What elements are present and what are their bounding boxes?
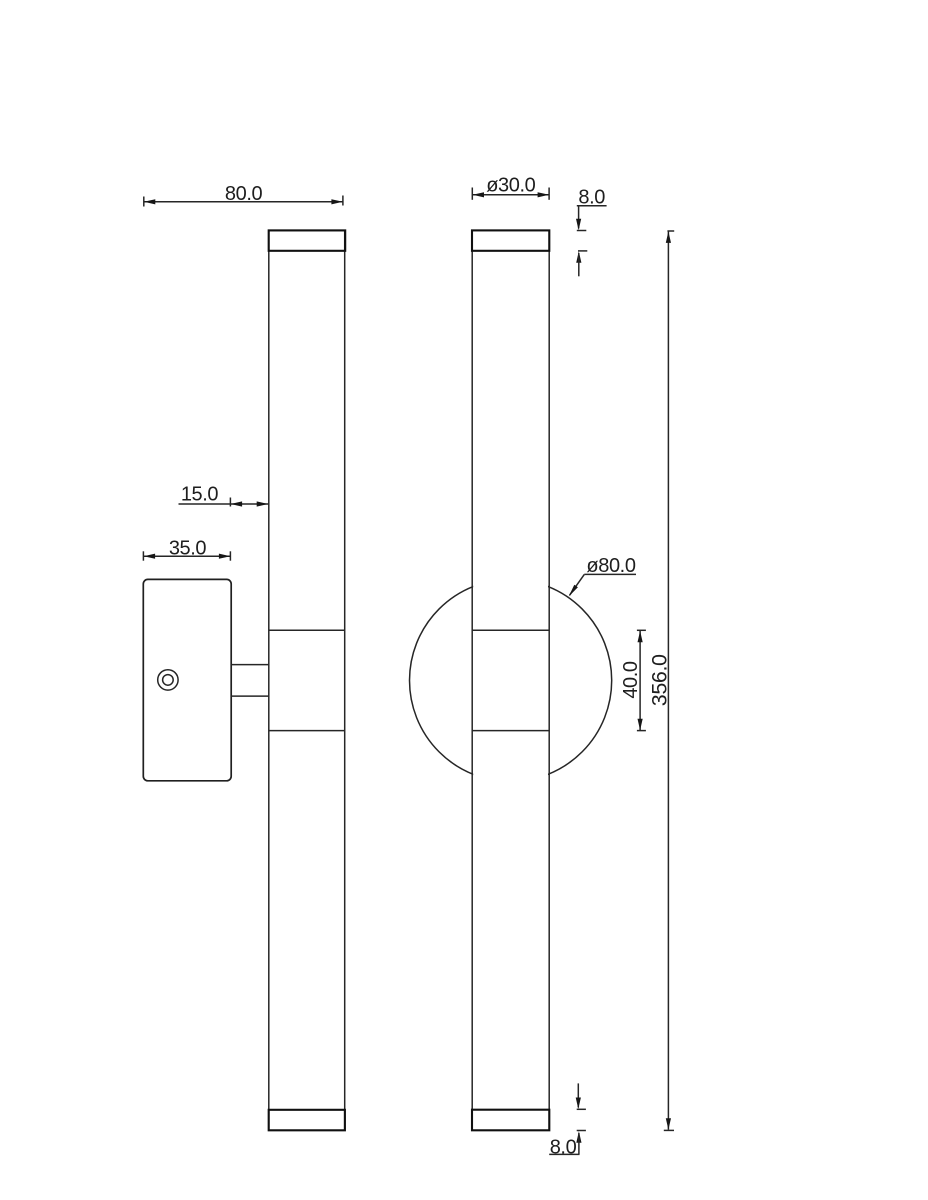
svg-text:35.0: 35.0 — [169, 538, 207, 560]
svg-text:ø80.0: ø80.0 — [586, 555, 635, 577]
svg-text:80.0: 80.0 — [225, 183, 263, 205]
svg-text:ø30.0: ø30.0 — [486, 174, 535, 196]
svg-text:8.0: 8.0 — [550, 1136, 577, 1158]
svg-text:15.0: 15.0 — [181, 484, 219, 506]
svg-text:356.0: 356.0 — [647, 654, 671, 706]
svg-text:40.0: 40.0 — [620, 661, 642, 699]
